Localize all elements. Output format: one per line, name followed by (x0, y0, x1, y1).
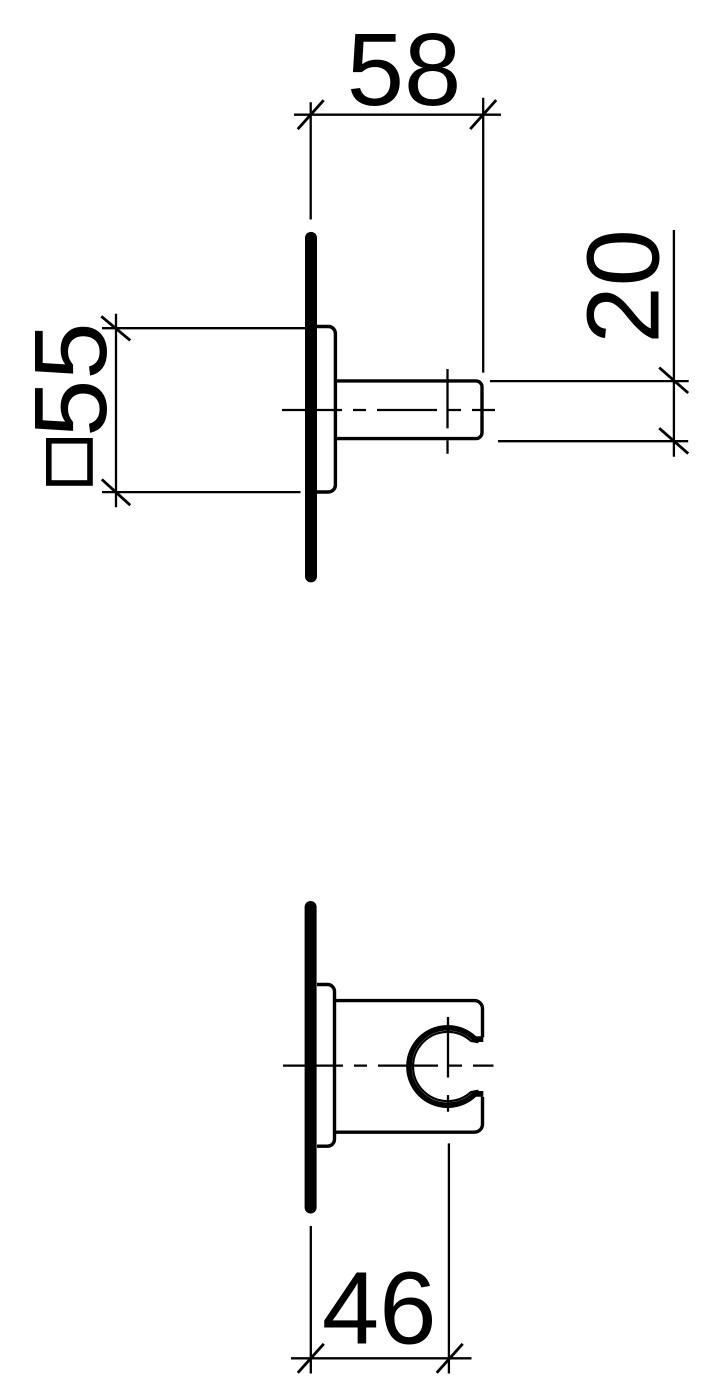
svg-text:55: 55 (13, 322, 128, 437)
svg-text:20: 20 (566, 229, 681, 344)
svg-text:46: 46 (322, 1251, 437, 1366)
svg-text:58: 58 (347, 12, 462, 127)
